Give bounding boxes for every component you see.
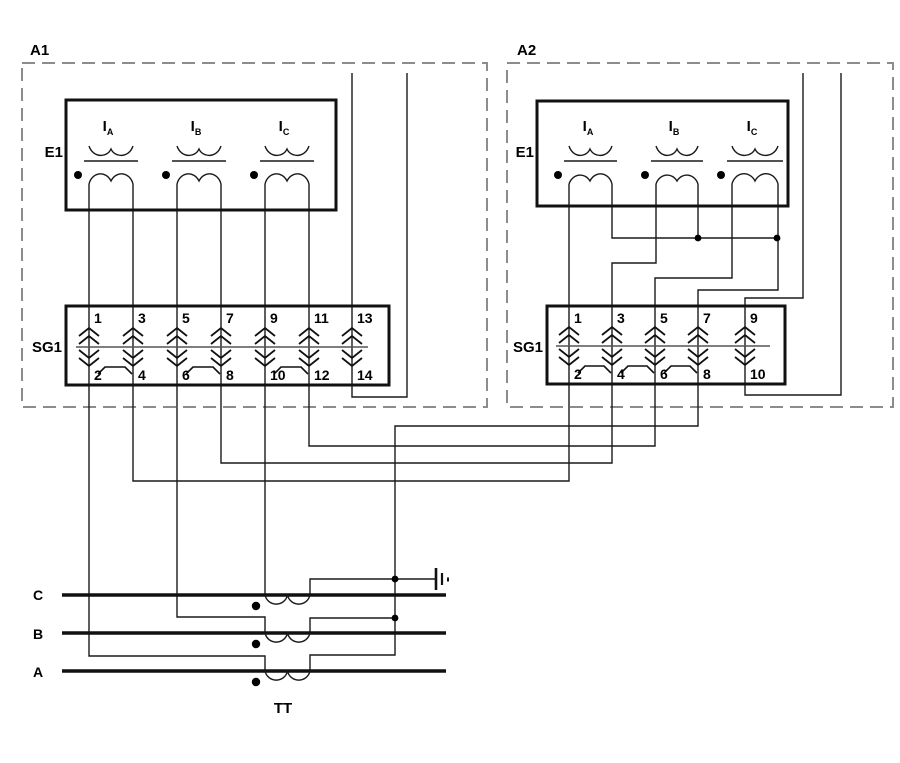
- coil-label: IC: [279, 118, 290, 137]
- ct-group-label: TT: [274, 700, 292, 717]
- phase-label-b: B: [33, 626, 43, 642]
- coil-primary-arcs: [89, 146, 133, 155]
- terminal-number: 3: [138, 310, 146, 326]
- phase-label-a: A: [33, 664, 43, 680]
- junction-dot: [392, 576, 399, 583]
- sg1-jumper-2-4: [98, 367, 132, 374]
- terminal-number: 8: [703, 366, 711, 382]
- relay-coil-ib-a2: IB: [641, 118, 703, 184]
- sg1-label-a1: SG1: [32, 339, 62, 356]
- wire-ct-b-return: [310, 618, 395, 633]
- sg1-jumper-2-4: [578, 366, 611, 373]
- polarity-dot: [717, 171, 725, 179]
- terminal-number: 6: [660, 366, 668, 382]
- coil-primary-arcs: [265, 146, 309, 155]
- coil-secondary-humps: [177, 174, 221, 184]
- wire-ct-c-return-to-ground: [310, 579, 436, 595]
- polarity-dot: [252, 640, 260, 648]
- device-a1-label: A1: [30, 42, 49, 59]
- terminal-number: 1: [574, 310, 582, 326]
- coil-secondary-humps: [656, 175, 698, 184]
- coil-primary-arcs: [656, 146, 698, 155]
- relay-e1-label-a1: E1: [45, 144, 63, 161]
- terminal-block-sg1-a2: SG1 1 3 5 7 9 2 4 6 8 10: [513, 306, 785, 384]
- terminal-number: 4: [138, 367, 146, 383]
- polarity-dot: [252, 678, 260, 686]
- terminal-number: 10: [750, 366, 766, 382]
- coil-primary-arcs: [177, 146, 221, 155]
- coil-secondary-humps: [732, 174, 778, 184]
- relay-coil-ia-a1: IA: [74, 118, 138, 184]
- terminal-number: 3: [617, 310, 625, 326]
- terminal-number: 2: [574, 366, 582, 382]
- sg1-label-a2: SG1: [513, 339, 543, 356]
- terminal-number: 10: [270, 367, 286, 383]
- terminal-number: 9: [270, 310, 278, 326]
- coil-label: IC: [747, 118, 758, 137]
- terminal-number: 6: [182, 367, 190, 383]
- terminal-number: 5: [660, 310, 668, 326]
- terminal-number: 8: [226, 367, 234, 383]
- coil-label: IA: [583, 118, 594, 137]
- coil-primary-arcs: [569, 146, 612, 155]
- relay-coil-ic-a1: IC: [250, 118, 314, 184]
- terminal-number: 7: [226, 310, 234, 326]
- sg1-jumper-6-8: [186, 367, 220, 374]
- sg1-jumper-4-6: [621, 366, 654, 373]
- junction-dot: [695, 235, 702, 242]
- terminal-number: 5: [182, 310, 190, 326]
- schematic-canvas: A1 A2 E1 E1 IA IB: [0, 0, 900, 763]
- terminal-number: 1: [94, 310, 102, 326]
- coil-label: IA: [103, 118, 114, 137]
- junction-dot: [774, 235, 781, 242]
- terminal-number: 7: [703, 310, 711, 326]
- coil-secondary-humps: [89, 174, 133, 184]
- three-phase-bus: C B A TT: [33, 568, 448, 717]
- wire-a1-t13-t14-stubs: [352, 73, 407, 397]
- wire-a2-star-to-ground-star: [310, 184, 778, 671]
- ground-icon: [436, 568, 448, 590]
- relay-coil-ib-a1: IB: [162, 118, 226, 184]
- terminal-number: 12: [314, 367, 330, 383]
- terminal-number: 4: [617, 366, 625, 382]
- coil-secondary-humps: [569, 174, 612, 184]
- sg1-jumper-6-8: [664, 366, 697, 373]
- junction-dot: [392, 615, 399, 622]
- terminal-number: 14: [357, 367, 373, 383]
- wire-a1-t8-to-a2-t4: [221, 184, 656, 463]
- polarity-dot: [162, 171, 170, 179]
- terminal-block-sg1-a1: SG1 1 3 5 7 9 11 13 2 4 6 8 10 12 14: [32, 306, 389, 385]
- terminal-number: 13: [357, 310, 373, 326]
- polarity-dot: [554, 171, 562, 179]
- wiring-diagram-page: A1 A2 E1 E1 IA IB: [0, 0, 900, 763]
- polarity-dot: [74, 171, 82, 179]
- relay-coil-ic-a2: IC: [717, 118, 783, 184]
- polarity-dot: [250, 171, 258, 179]
- coil-label: IB: [669, 118, 680, 137]
- relay-coil-ia-a2: IA: [554, 118, 617, 184]
- polarity-dot: [641, 171, 649, 179]
- polarity-dot: [252, 602, 260, 610]
- coil-secondary-humps: [265, 174, 309, 184]
- wire-a1-t4-to-a2-t2: [133, 184, 569, 481]
- device-a2-label: A2: [517, 42, 536, 59]
- coil-primary-arcs: [732, 146, 778, 155]
- phase-label-c: C: [33, 587, 43, 603]
- terminal-number: 9: [750, 310, 758, 326]
- relay-e1-label-a2: E1: [516, 144, 534, 161]
- terminal-number: 2: [94, 367, 102, 383]
- wire-a2-star-bar: [612, 184, 778, 238]
- terminal-number: 11: [314, 310, 329, 326]
- coil-label: IB: [191, 118, 202, 137]
